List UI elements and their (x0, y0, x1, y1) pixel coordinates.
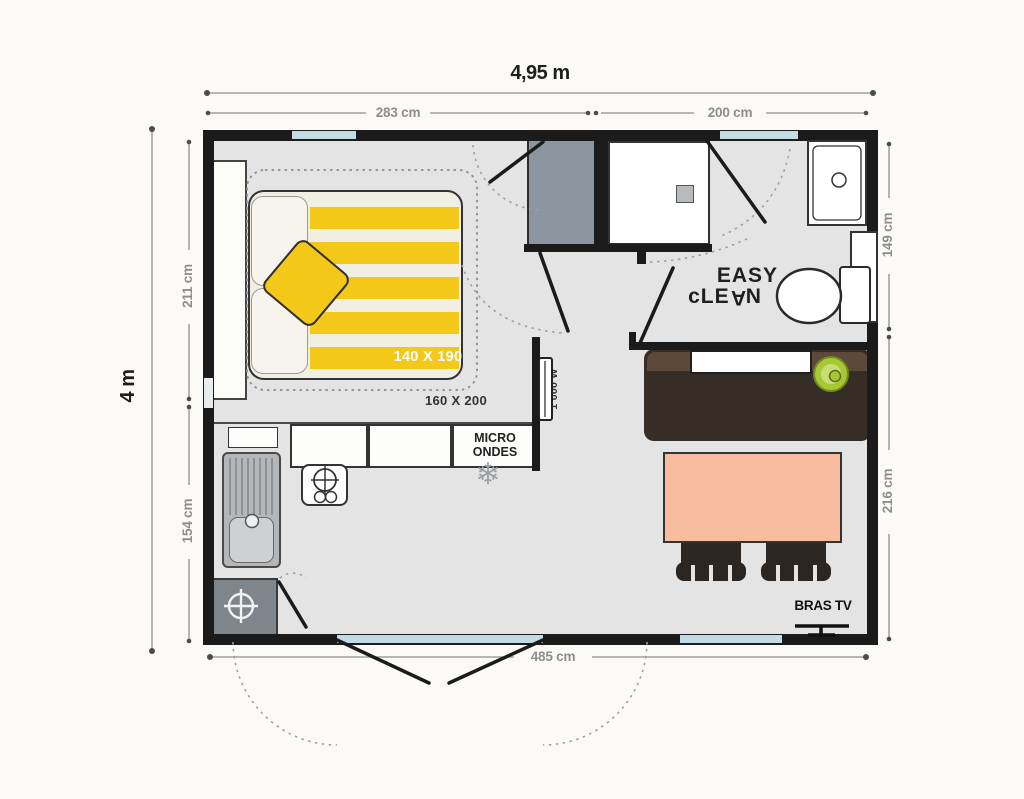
wall-radiator (532, 337, 540, 471)
bed-headboard (209, 160, 247, 400)
floor-plan: 140 X 190 160 X 200 MICRO ONDES ❄ EASY c… (0, 0, 1024, 799)
wall-divider-tick (629, 332, 636, 342)
kitchen-counter (368, 424, 452, 468)
wardrobe (527, 141, 594, 249)
french-door-glass (337, 635, 543, 643)
clean-text: cLEAN (660, 285, 790, 309)
rug-size-label: 160 X 200 (422, 393, 490, 408)
kitchen-counter (290, 424, 368, 468)
dim-top-left: 283 cm (368, 104, 428, 122)
wall-divider-right (629, 342, 872, 350)
sink-basin (229, 517, 274, 563)
kitchen-island-counter (644, 349, 871, 441)
wall-wardrobe-shower (594, 141, 608, 252)
dim-left-lower: 154 cm (179, 491, 197, 551)
wall-bathroom-bottom (524, 244, 712, 252)
dim-overall-height: 4 m (115, 356, 141, 416)
bed-stripe (310, 242, 459, 264)
window-top-1 (292, 131, 356, 139)
dim-right-lower: 216 cm (879, 461, 897, 521)
window-top-2 (720, 131, 798, 139)
heater-power-label: 1 000 W (548, 359, 568, 419)
shower-drain-icon (676, 185, 694, 203)
dining-table (663, 452, 842, 543)
dim-right-upper: 149 cm (879, 205, 897, 265)
freezer-icon: ❄ (468, 458, 508, 492)
window-left (204, 378, 213, 408)
dim-left-upper: 211 cm (179, 256, 197, 316)
chair-backrest (761, 562, 831, 581)
bed-stripe (310, 312, 459, 334)
counter-tray (690, 350, 812, 374)
bed-stripe (310, 207, 459, 229)
window-bottom (680, 635, 782, 643)
dim-bottom: 485 cm (523, 648, 583, 666)
bed-size-label: 140 X 190 (392, 349, 464, 365)
bedside-shelf (228, 427, 278, 448)
dim-overall-width: 4,95 m (480, 60, 600, 86)
wall-right (867, 130, 878, 645)
water-heater-compartment (208, 578, 278, 637)
wall-stub (637, 252, 646, 264)
chair-backrest (676, 562, 746, 581)
dim-top-right: 200 cm (700, 104, 760, 122)
microwave-label: MICRO ONDES (473, 432, 517, 460)
shower (608, 141, 710, 245)
sink-drainer (229, 458, 274, 515)
tv-bracket-label: BRAS TV (783, 598, 863, 613)
easy-clean-label: EASY cLEAN (660, 264, 790, 309)
kitchen-sink-unit (222, 452, 281, 568)
